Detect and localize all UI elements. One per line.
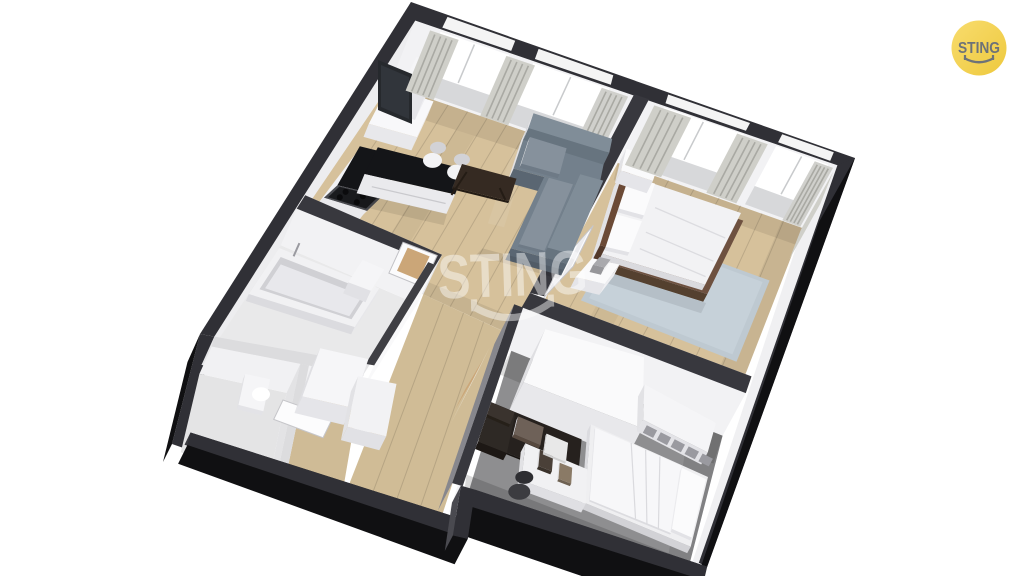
svg-text:STING: STING xyxy=(958,40,1000,57)
svg-text:STING: STING xyxy=(436,238,588,312)
